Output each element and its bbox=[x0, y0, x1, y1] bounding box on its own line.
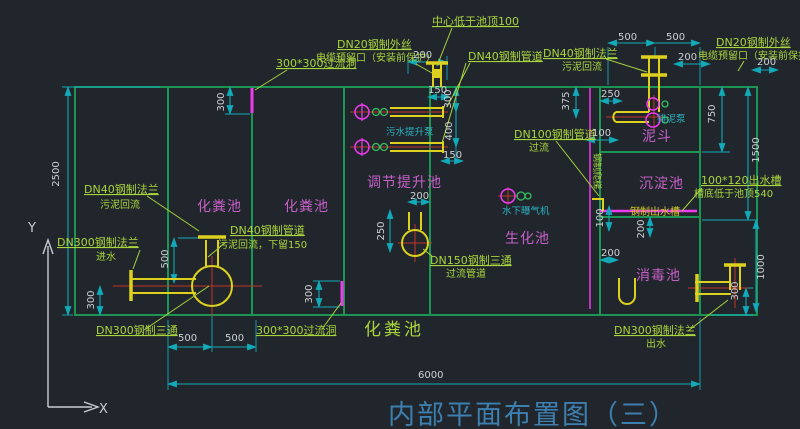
disinfect-trough bbox=[619, 278, 635, 304]
dim-100-hopper: 100 bbox=[592, 128, 611, 139]
dim-500-inlet: 500 bbox=[160, 249, 171, 268]
callout-dn300-outlet-2: 出水 bbox=[646, 337, 666, 350]
callout-dn40-flange-mid-2: 污泥回流 bbox=[562, 60, 602, 73]
callout-dn40-flange-mid-1: DN40钢制法兰 bbox=[543, 46, 618, 60]
dim-375-hopper: 375 bbox=[561, 91, 572, 110]
dim-300-wall-top: 300 bbox=[216, 92, 227, 111]
dim-500-bottom-b: 500 bbox=[225, 333, 244, 344]
label-ladder: 钢制爬梯 bbox=[591, 153, 603, 189]
dim-200-topright-a: 200 bbox=[678, 52, 697, 63]
dim-300-inlet: 300 bbox=[86, 290, 97, 309]
label-sludge-pump: 排泥泵 bbox=[657, 113, 686, 125]
dim-200-weir-a: 200 bbox=[636, 219, 647, 238]
callout-trough-1: 100*120出水槽 bbox=[701, 173, 782, 187]
dim-1500-right: 1500 bbox=[751, 137, 762, 162]
label-sediment: 沉淀池 bbox=[639, 176, 684, 192]
dim-250-hopper: 250 bbox=[601, 89, 620, 100]
dim-500-bottom-a: 500 bbox=[178, 333, 197, 344]
ucs-y-label: Y bbox=[27, 221, 36, 236]
aerator-symbol bbox=[498, 187, 531, 205]
dim-150-pump-b: 150 bbox=[443, 150, 462, 161]
callout-dn40-pipe: DN40钢制管道 bbox=[468, 49, 543, 63]
dim-500-topright-b: 500 bbox=[666, 32, 685, 43]
callout-dn150-tee-1: DN150钢制三通 bbox=[430, 254, 512, 267]
callout-dn20-right-2: 电缆预留口（安装前保护） bbox=[698, 49, 800, 62]
callout-dn150-tee-2: 过流管道 bbox=[446, 267, 486, 280]
label-outlet-trough: 钢制出水槽 bbox=[630, 205, 680, 218]
dim-200-topright-b: 200 bbox=[757, 57, 776, 68]
label-septic-1: 化粪池 bbox=[197, 199, 242, 215]
label-disinfect: 消毒池 bbox=[636, 268, 681, 284]
dim-750-right: 750 bbox=[707, 104, 718, 123]
label-septic-bottom: 化粪池 bbox=[364, 320, 424, 340]
dim-200-pump: 200 bbox=[410, 191, 429, 202]
label-regulating: 调节提升池 bbox=[367, 175, 442, 191]
dim-1000-right: 1000 bbox=[756, 254, 767, 279]
cad-canvas[interactable]: Y X 中心低于池顶100 DN20钢制外丝 电缆预留口（安装前保护） 300*… bbox=[0, 0, 800, 429]
callout-dn40-return-2: 污泥回流，下留150 bbox=[218, 238, 307, 251]
label-septic-2: 化粪池 bbox=[284, 199, 329, 215]
dim-300-outlet: 300 bbox=[730, 281, 741, 300]
callout-center-top: 中心低于池顶100 bbox=[432, 15, 519, 28]
dim-200-top-center: 200 bbox=[413, 50, 432, 61]
dn150-tee-assembly bbox=[398, 212, 432, 262]
dim-250-tee: 250 bbox=[376, 221, 387, 240]
callout-trough-2: 槽底低于池顶540 bbox=[694, 187, 773, 200]
callout-dn300-tee: DN300钢制三通 bbox=[96, 324, 178, 337]
label-aerator: 水下曝气机 bbox=[502, 205, 550, 217]
callout-dn300-inlet-1: DN300钢制法兰 bbox=[57, 235, 139, 249]
dim-300-pump: 300 bbox=[443, 89, 454, 108]
ucs-x-label: X bbox=[99, 402, 108, 417]
drawing-title: 内部平面布置图（三） bbox=[388, 400, 678, 429]
callout-dn40-flange-left-2: 污泥回流 bbox=[100, 198, 140, 211]
label-sewage-pump: 污水提升泵 bbox=[386, 126, 434, 138]
callout-dn300-outlet-1: DN300钢制法兰 bbox=[614, 323, 696, 337]
dim-300-wall-mid: 300 bbox=[304, 284, 315, 303]
dim-500-topright-a: 500 bbox=[618, 32, 637, 43]
callout-dn40-return-1: DN40钢制管道 bbox=[230, 223, 305, 237]
label-hopper: 泥斗 bbox=[642, 129, 672, 145]
dim-6000-total: 6000 bbox=[418, 370, 443, 381]
dim-200-weir-b: 200 bbox=[601, 248, 620, 259]
dim-2500-total: 2500 bbox=[51, 161, 62, 186]
dim-100-weir: 100 bbox=[595, 208, 606, 227]
callout-dn300-inlet-2: 进水 bbox=[96, 251, 116, 263]
dim-400-pump: 400 bbox=[444, 121, 455, 140]
callout-dn20-right-1: DN20钢制外丝 bbox=[716, 36, 791, 49]
callout-dn100-1: DN100钢制管道 bbox=[514, 127, 596, 141]
callout-dn40-flange-left-1: DN40钢制法兰 bbox=[84, 182, 159, 196]
callout-dn100-2: 过流 bbox=[529, 141, 549, 154]
callout-overflow-top: 300*300过流洞 bbox=[276, 56, 357, 70]
lift-pump-assembly bbox=[350, 63, 448, 156]
callout-dn20-left-1: DN20钢制外丝 bbox=[337, 38, 412, 51]
label-bio: 生化池 bbox=[505, 231, 550, 247]
callout-overflow-bottom: 300*300过流洞 bbox=[256, 323, 337, 337]
